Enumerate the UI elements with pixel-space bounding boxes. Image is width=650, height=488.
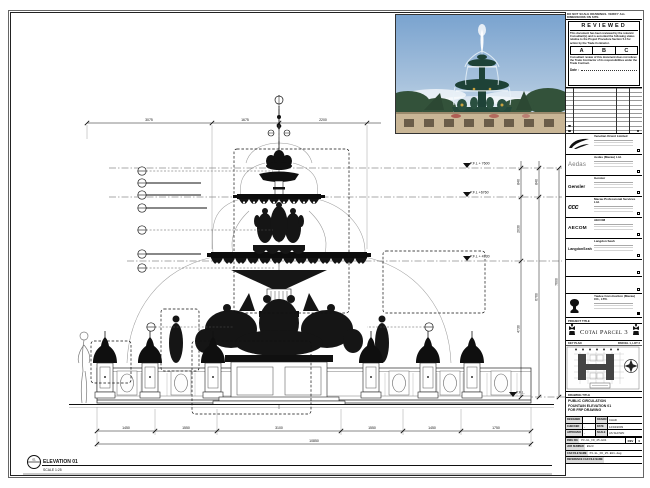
aedas-logo: Aedas xyxy=(568,156,592,174)
consultant-block-aedas: Aedas Aedas (Macau) Ltd. xyxy=(566,155,642,176)
reference-cad-file-row: REFERENCE CAD FILE NAME xyxy=(566,457,642,464)
drawing-title-block: DRAWING TITLE PUBLIC CIRCULATION FOUNTAI… xyxy=(566,392,642,476)
gensler-logo: Gensler xyxy=(568,177,592,195)
contractor-block-yaulee: Yaulee Construction (Macau) CO., LTD. xyxy=(566,294,642,318)
level-label: P.F.L + 4730 xyxy=(470,255,490,259)
consultant-address-lines xyxy=(594,161,633,168)
consultant-checkbox xyxy=(637,170,641,174)
consultant-address-lines xyxy=(594,206,633,213)
status-option-c: C xyxy=(616,47,637,54)
rev-label: REV xyxy=(625,438,636,444)
elevation-label: ELEVATION 01 xyxy=(43,459,78,465)
key-plan-sublabel: PARCEL 1, LOT 2 xyxy=(618,342,640,345)
photo-stone-basin xyxy=(396,112,568,133)
contractor-name: Yaulee Construction (Macau) CO., LTD. xyxy=(594,295,640,302)
reviewed-date-row: Date : xyxy=(570,68,638,72)
date-label: Date : xyxy=(570,68,579,72)
langdon-seah-logo: LangdonSeah xyxy=(568,240,592,258)
cad-file-value: P3-GL_FD_25-E01.dwg xyxy=(588,451,642,457)
key-plan-block: KEY PLAN PARCEL 1, LOT 2 xyxy=(566,341,642,392)
consultant-block-empty-2 xyxy=(566,277,642,294)
aecom-logo: AECOM xyxy=(568,219,592,237)
dwg-number-value: P3-GL_FD_25-E01 xyxy=(579,438,624,444)
consultant-checkbox xyxy=(637,254,641,258)
consultant-name: Langdon Seah xyxy=(594,240,640,243)
dim-value: 1675 xyxy=(241,118,249,122)
consultant-name: AECOM xyxy=(594,219,640,222)
consultant-address-lines xyxy=(594,224,633,231)
reviewed-title: REVIEWED xyxy=(570,23,638,31)
project-emblem-left-icon xyxy=(568,323,576,341)
consultant-name: Macau Professional Services Ltd. xyxy=(594,198,640,205)
dim-value: 1550 xyxy=(182,426,190,430)
contractor-address-lines xyxy=(594,303,633,310)
drawing-sheet-viewer: 3075 1675 2200 840 2030 4730 840 6760 76… xyxy=(0,0,650,488)
scale-figure xyxy=(78,332,90,403)
rev-value: 0 xyxy=(635,438,642,444)
consultant-checkbox xyxy=(637,191,641,195)
dim-value: 1450 xyxy=(122,426,130,430)
scale-label: SCALE xyxy=(596,430,608,437)
reviewed-status-options: A B C xyxy=(570,46,638,55)
dim-value: 1750 xyxy=(492,426,500,430)
key-plan-map xyxy=(566,346,641,390)
dim-value: 2200 xyxy=(319,118,327,122)
consultant-block-empty-1 xyxy=(566,260,642,277)
consultant-name: Venetian Orient Limited xyxy=(594,135,640,138)
title-block: DO NOT SCALE DRAWINGS. VERIFY ALL DIMENS… xyxy=(565,12,642,476)
dim-value: 6760 xyxy=(535,293,539,301)
elevation-tag: 01 xyxy=(32,458,36,462)
note-strip: DO NOT SCALE DRAWINGS. VERIFY ALL DIMENS… xyxy=(566,12,642,20)
consultant-checkbox xyxy=(637,149,641,153)
reference-cad-file-label: REFERENCE CAD FILE NAME xyxy=(566,457,604,463)
elevation-title: 01 ELEVATION 01 SCALE 1:25 xyxy=(23,456,552,475)
date-line xyxy=(581,68,637,71)
elevation-scale: SCALE 1:25 xyxy=(43,468,62,472)
revision-table xyxy=(566,88,642,134)
consultant-block-venetian: Venetian Orient Limited xyxy=(566,134,642,155)
dim-value: 3100 xyxy=(275,426,283,430)
level-label: P.F.L + 7600 xyxy=(470,162,490,166)
dim-value: 840 xyxy=(535,179,539,185)
drawing-title-line-3: FOR FRP DRAWING xyxy=(568,408,640,413)
project-emblem-right-icon xyxy=(632,323,640,341)
consultant-block-gensler: Gensler Gensler xyxy=(566,176,642,197)
drawing-info-table: DESIGNED DRAWN CHAD CHECKED - DATE 12/04… xyxy=(566,417,642,438)
key-plan-label: KEY PLAN xyxy=(568,342,582,345)
consultant-checkbox xyxy=(637,212,641,216)
approved-label: APPROVED xyxy=(566,430,583,437)
consultant-address-lines xyxy=(594,245,633,252)
dim-overall-value: 10850 xyxy=(309,439,319,443)
dwg-number-label: DWG NO. xyxy=(566,438,579,444)
contractor-checkbox xyxy=(637,312,641,316)
level-lines xyxy=(109,168,567,397)
dim-value: 3075 xyxy=(145,118,153,122)
consultant-checkbox xyxy=(637,233,641,237)
job-number-value: B123 xyxy=(585,444,642,450)
dim-value: 7600 xyxy=(555,278,559,286)
consultant-block-macau-professional: ccc Macau Professional Services Ltd. xyxy=(566,197,642,218)
dim-value: 1550 xyxy=(368,426,376,430)
reviewed-stamp: REVIEWED This document has been reviewed… xyxy=(566,20,642,88)
scale-value: AS SHOWN xyxy=(608,430,642,437)
consultant-checkbox xyxy=(637,288,641,292)
macau-professional-services-logo: ccc xyxy=(568,198,592,216)
fountain-photo xyxy=(395,14,569,134)
dim-value: 1450 xyxy=(428,426,436,430)
status-option-b: B xyxy=(593,47,615,54)
consultant-block-langdon-seah: LangdonSeah Langdon Seah xyxy=(566,239,642,260)
project-title-band: Cotai Parcel 3 xyxy=(566,324,642,341)
yaulee-emblem-icon xyxy=(568,295,592,316)
consultant-name: Aedas (Macau) Ltd. xyxy=(594,156,640,159)
fountain-photo-image xyxy=(396,15,568,133)
consultant-name: Gensler xyxy=(594,177,640,180)
status-option-a: A xyxy=(571,47,593,54)
job-number-label: JOB NUMBER xyxy=(566,444,585,450)
level-label: P.F.L. xyxy=(516,391,525,395)
consultant-block-aecom: AECOM AECOM xyxy=(566,218,642,239)
reviewed-paragraph-2: Consultant review of this document does … xyxy=(570,56,638,66)
venetian-orient-logo-icon xyxy=(568,135,592,153)
dim-value: 4730 xyxy=(517,325,521,333)
dim-value: 2030 xyxy=(517,225,521,233)
approved-value: - xyxy=(583,430,596,437)
consultant-checkbox xyxy=(637,271,641,275)
dim-value: 840 xyxy=(517,179,521,185)
reviewed-paragraph-1: This document has been reviewed by the r… xyxy=(570,32,638,45)
project-title: Cotai Parcel 3 xyxy=(580,329,628,336)
level-label: P.F.L +6760 xyxy=(470,191,489,195)
fountain-tiers xyxy=(207,95,371,317)
consultant-address-lines xyxy=(594,182,633,189)
consultant-address-lines xyxy=(594,140,633,147)
cad-file-label: CAD FILE NAME xyxy=(566,451,588,457)
drawing-title-text: PUBLIC CIRCULATION FOUNTAIN ELEVATION 01… xyxy=(566,398,642,417)
